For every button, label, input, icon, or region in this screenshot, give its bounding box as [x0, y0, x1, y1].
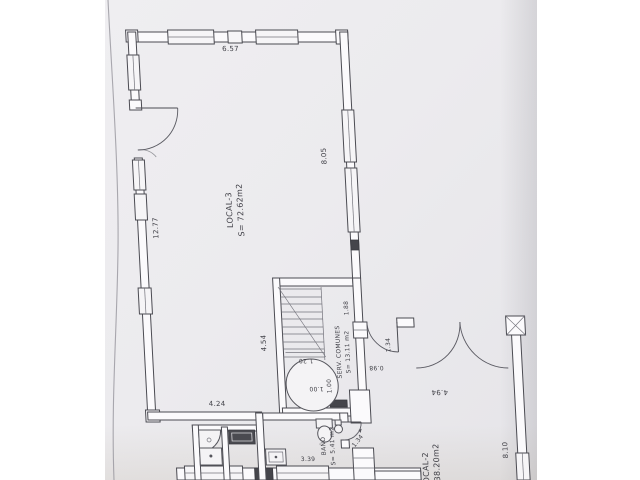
- wall-top: [126, 30, 349, 44]
- shower-tray-fixture: [229, 430, 256, 444]
- dim-stair-width: 1.20: [298, 357, 313, 364]
- room-bano-name: BAÑO: [320, 437, 328, 456]
- dim-stair-side: 1.88: [343, 301, 351, 316]
- floorplan-scan: 6.57 LOCAL-3 S= 72.62m2 12.77 8.05 4.54 …: [0, 0, 640, 480]
- dim-local2-height: 8.10: [501, 442, 510, 459]
- scanned-floorplan-page: 6.57 LOCAL-3 S= 72.62m2 12.77 8.05 4.54 …: [0, 0, 640, 480]
- dim-hall-width: 4.24: [209, 400, 226, 408]
- room-local3-name: LOCAL-3: [224, 192, 235, 228]
- dim-entrance: 4.94: [431, 388, 448, 396]
- dim-lift: 1.00: [309, 385, 324, 392]
- dim-hall-height: 4.54: [260, 334, 269, 351]
- dim-right-height: 8.05: [320, 148, 329, 165]
- dim-shaft: 1.00: [326, 379, 334, 394]
- dim-serv-door: 1.34: [385, 338, 393, 353]
- dim-bano-width: 3.39: [301, 456, 316, 463]
- dim-top-width: 6.57: [222, 45, 239, 53]
- dim-left-height: 12.77: [151, 217, 160, 239]
- washbasin-fixture: [266, 449, 287, 465]
- wall-local3-bottom: [148, 412, 262, 420]
- sink-left-fixture: [199, 448, 222, 465]
- dim-step: 0.98: [369, 364, 384, 371]
